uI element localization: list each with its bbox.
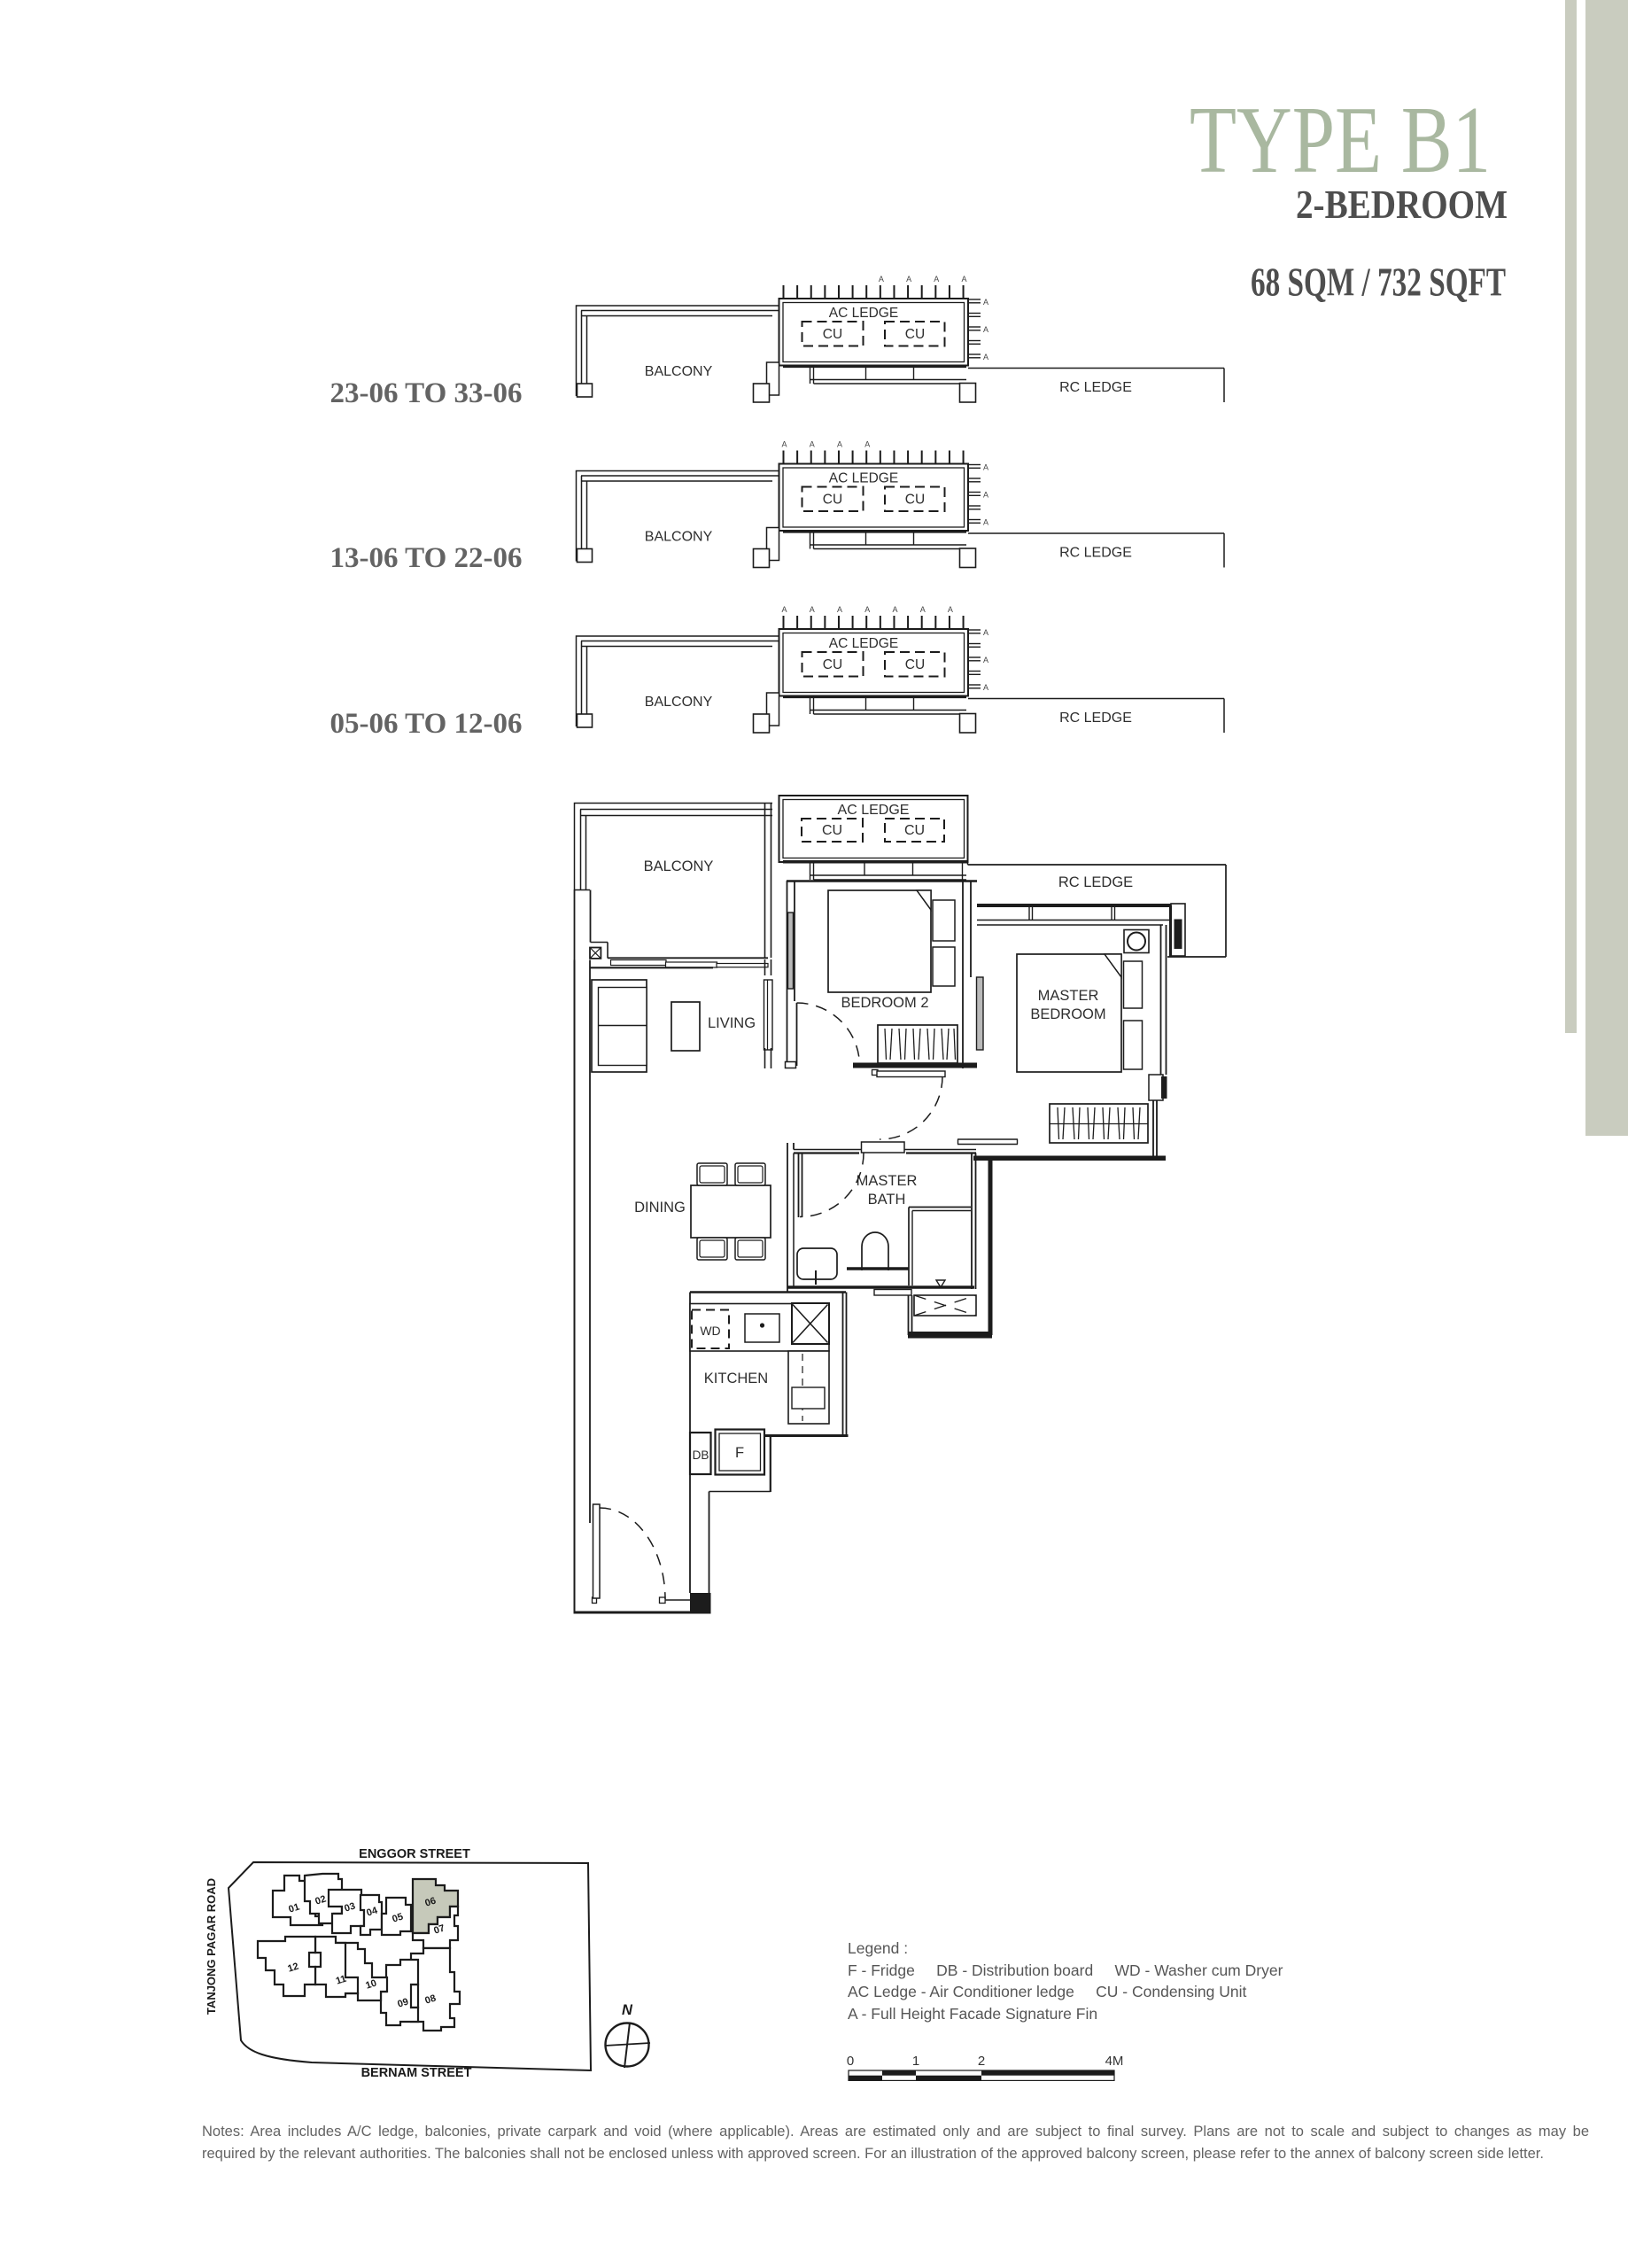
svg-text:A: A (879, 275, 884, 283)
svg-text:AC LEDGE: AC LEDGE (829, 306, 898, 321)
svg-text:KITCHEN: KITCHEN (704, 1371, 768, 1386)
svg-text:A: A (906, 275, 911, 283)
svg-text:A: A (983, 683, 988, 692)
svg-text:A: A (983, 353, 988, 361)
svg-text:A: A (837, 440, 842, 449)
svg-text:MASTER: MASTER (857, 1173, 918, 1189)
svg-text:A: A (983, 491, 988, 500)
svg-text:DB: DB (693, 1449, 709, 1462)
svg-text:A: A (983, 518, 988, 527)
svg-text:LIVING: LIVING (708, 1015, 756, 1031)
svg-text:0: 0 (847, 2054, 854, 2069)
svg-text:BATH: BATH (868, 1192, 906, 1208)
svg-text:A: A (962, 275, 967, 283)
svg-text:WD: WD (700, 1324, 720, 1338)
svg-text:CU: CU (905, 327, 925, 342)
svg-text:F: F (735, 1445, 744, 1461)
svg-text:BALCONY: BALCONY (644, 858, 714, 874)
svg-text:BEDROOM 2: BEDROOM 2 (841, 995, 928, 1011)
svg-text:A: A (920, 605, 926, 614)
svg-text:RC LEDGE: RC LEDGE (1059, 546, 1132, 561)
svg-text:4M: 4M (1105, 2054, 1124, 2069)
svg-text:A: A (983, 325, 988, 334)
svg-text:BEDROOM: BEDROOM (1030, 1006, 1105, 1022)
svg-text:A: A (983, 656, 988, 664)
svg-text:A: A (934, 275, 939, 283)
svg-text:AC LEDGE: AC LEDGE (829, 471, 898, 486)
svg-text:A: A (781, 605, 787, 614)
svg-text:CU: CU (904, 823, 925, 838)
svg-text:A: A (864, 440, 870, 449)
svg-text:CU: CU (905, 657, 925, 672)
svg-text:A: A (983, 628, 988, 637)
svg-text:CU: CU (823, 327, 842, 342)
svg-text:MASTER: MASTER (1038, 988, 1099, 1004)
svg-text:DINING: DINING (634, 1200, 686, 1216)
svg-text:1: 1 (912, 2054, 919, 2069)
svg-text:TANJONG PAGAR ROAD: TANJONG PAGAR ROAD (205, 1878, 218, 2015)
svg-text:BALCONY: BALCONY (645, 364, 713, 379)
svg-text:CU: CU (822, 823, 842, 838)
svg-text:A: A (837, 605, 842, 614)
svg-text:A: A (983, 298, 988, 307)
svg-text:A: A (948, 605, 953, 614)
svg-text:A: A (983, 463, 988, 472)
svg-text:AC LEDGE: AC LEDGE (829, 636, 898, 651)
svg-text:BERNAM STREET: BERNAM STREET (361, 2066, 472, 2080)
svg-text:A: A (810, 440, 815, 449)
svg-text:ENGGOR STREET: ENGGOR STREET (359, 1847, 470, 1861)
svg-text:BALCONY: BALCONY (645, 695, 713, 710)
svg-text:AC LEDGE: AC LEDGE (838, 803, 910, 818)
svg-text:CU: CU (905, 493, 925, 508)
svg-text:A: A (864, 605, 870, 614)
svg-text:RC LEDGE: RC LEDGE (1059, 380, 1132, 395)
svg-text:CU: CU (823, 493, 842, 508)
svg-text:CU: CU (823, 657, 842, 672)
svg-text:N: N (622, 2002, 633, 2018)
svg-text:A: A (892, 605, 897, 614)
svg-text:BALCONY: BALCONY (645, 530, 713, 545)
svg-text:2: 2 (978, 2054, 985, 2069)
svg-text:RC LEDGE: RC LEDGE (1058, 874, 1133, 890)
svg-text:RC LEDGE: RC LEDGE (1059, 711, 1132, 726)
svg-text:A: A (810, 605, 815, 614)
svg-text:A: A (781, 440, 787, 449)
